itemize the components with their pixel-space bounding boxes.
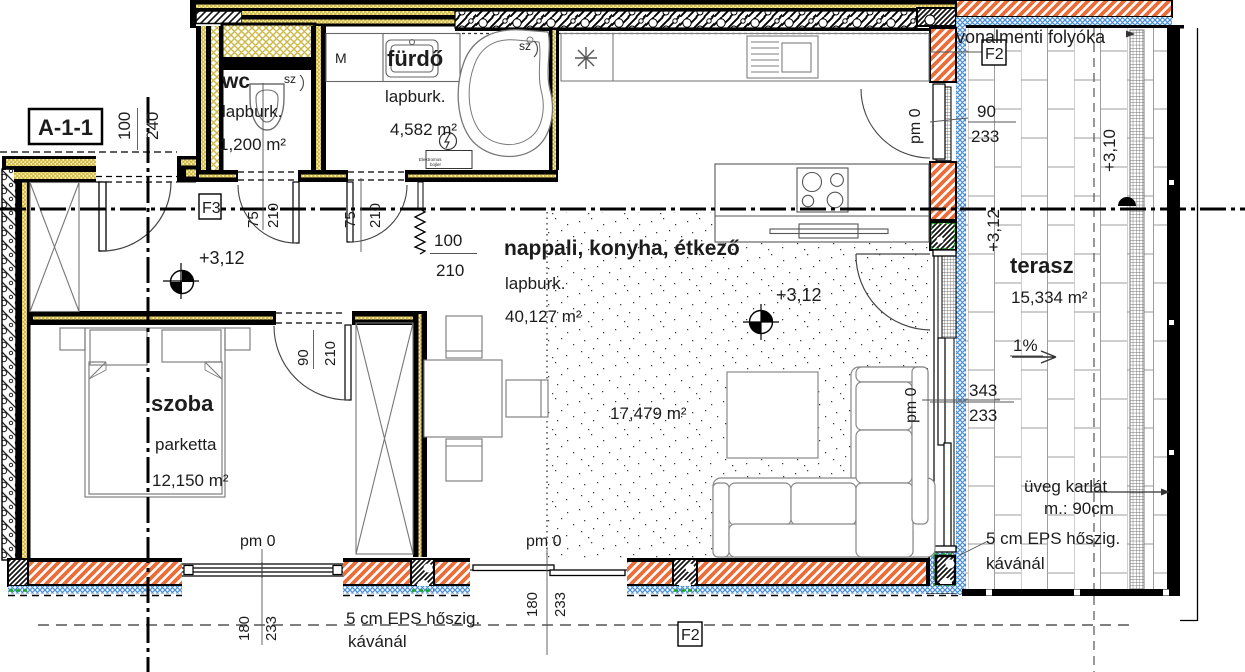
- svg-text:12,150 m²: 12,150 m²: [152, 471, 229, 490]
- svg-text:233: 233: [552, 592, 569, 617]
- svg-text:M: M: [335, 50, 347, 66]
- svg-text:pm 0: pm 0: [240, 533, 276, 550]
- svg-text:bojler: bojler: [430, 162, 442, 167]
- svg-text:75: 75: [342, 211, 359, 228]
- svg-text:1%: 1%: [1013, 336, 1038, 355]
- svg-text:pm 0: pm 0: [526, 533, 562, 550]
- svg-text:pm 0: pm 0: [907, 108, 924, 144]
- svg-text:233: 233: [263, 616, 280, 641]
- svg-text:+3,12: +3,12: [199, 248, 245, 268]
- svg-text:343: 343: [969, 381, 997, 400]
- svg-text:kávánál: kávánál: [348, 632, 407, 651]
- svg-text:90: 90: [977, 102, 996, 121]
- svg-text:+3,10: +3,10: [1100, 129, 1119, 172]
- svg-text:180: 180: [236, 616, 253, 641]
- svg-text:40,127 m²: 40,127 m²: [505, 307, 582, 326]
- svg-text:4,582 m²: 4,582 m²: [390, 120, 457, 139]
- svg-text:kávánál: kávánál: [986, 554, 1045, 573]
- svg-text:lapburk.: lapburk.: [222, 102, 282, 121]
- svg-text:1,200 m²: 1,200 m²: [219, 135, 286, 154]
- svg-text:F3: F3: [202, 200, 221, 217]
- svg-text:üveg karlát: üveg karlát: [1024, 477, 1107, 496]
- svg-text:90: 90: [295, 349, 312, 366]
- svg-text:17,479 m²: 17,479 m²: [610, 404, 687, 423]
- svg-text:fürdő: fürdő: [387, 46, 443, 71]
- svg-text:wc: wc: [221, 70, 250, 93]
- svg-text:240: 240: [143, 112, 162, 140]
- svg-text:5 cm EPS hőszig.: 5 cm EPS hőszig.: [986, 529, 1120, 548]
- svg-text:m.: 90cm: m.: 90cm: [1044, 499, 1114, 518]
- svg-text:A-1-1: A-1-1: [38, 115, 93, 140]
- svg-text:5 cm EPS hőszig.: 5 cm EPS hőszig.: [346, 609, 480, 628]
- svg-text:100: 100: [434, 231, 462, 250]
- svg-text:pm 0: pm 0: [903, 387, 920, 423]
- svg-text:210: 210: [265, 203, 282, 228]
- svg-text:lapburk.: lapburk.: [505, 274, 565, 293]
- svg-text:+3,12: +3,12: [776, 285, 822, 305]
- svg-text:lapburk.: lapburk.: [385, 87, 445, 106]
- svg-text:15,334 m²: 15,334 m²: [1011, 288, 1088, 307]
- svg-text:parketta: parketta: [155, 435, 217, 454]
- svg-text:F2: F2: [985, 46, 1004, 63]
- svg-text:210: 210: [322, 341, 339, 366]
- svg-text:100: 100: [115, 112, 134, 140]
- svg-text:F2: F2: [681, 627, 700, 644]
- svg-text:180: 180: [524, 592, 541, 617]
- svg-text:terasz: terasz: [1010, 253, 1074, 278]
- svg-text:210: 210: [436, 261, 464, 280]
- svg-text:vonalmenti folyóka: vonalmenti folyóka: [956, 27, 1106, 47]
- svg-text:szoba: szoba: [151, 391, 214, 416]
- svg-text:233: 233: [971, 127, 999, 146]
- svg-text:+3,12: +3,12: [984, 209, 1003, 252]
- svg-text:nappali, konyha, étkező: nappali, konyha, étkező: [504, 237, 740, 260]
- svg-text:210: 210: [367, 203, 384, 228]
- svg-text:75: 75: [245, 211, 262, 228]
- svg-text:sz: sz: [284, 72, 296, 86]
- svg-text:sz: sz: [519, 39, 531, 53]
- svg-text:233: 233: [969, 406, 997, 425]
